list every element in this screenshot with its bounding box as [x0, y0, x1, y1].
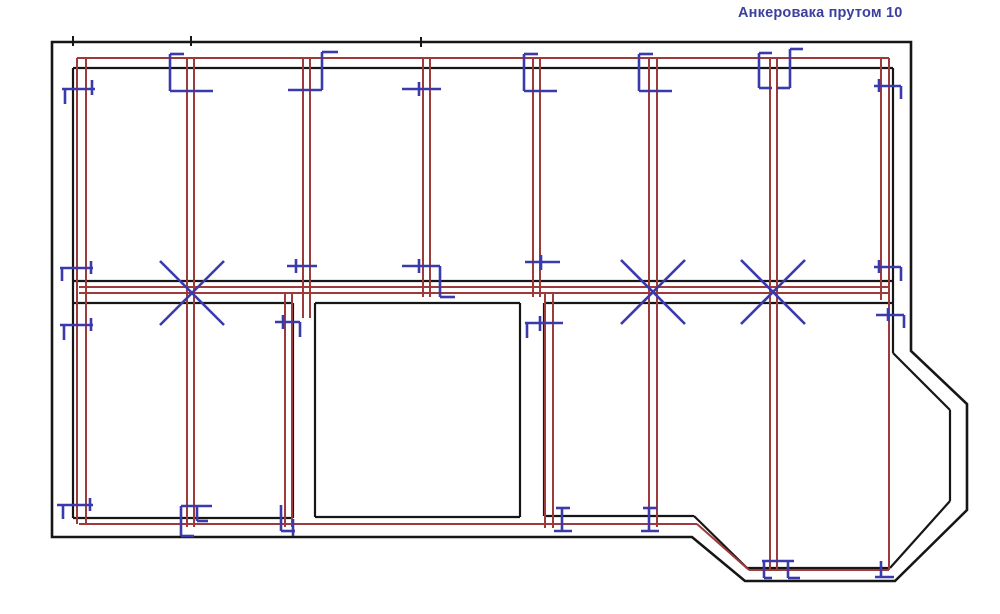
rebar-lines — [77, 58, 889, 571]
anchor-mark-p3-mid-hook — [402, 259, 455, 297]
anchor-mark-p4-mid-tick — [525, 255, 560, 270]
outer-wall-outline — [52, 42, 967, 581]
floor-plan — [0, 0, 1000, 614]
anchor-mark-room1-bottomleft — [57, 498, 93, 519]
drawing-stage: Анкеровака прутом 10 — [0, 0, 1000, 614]
anchor-mark-p1-top-bracket — [170, 54, 213, 91]
anchor-mark-p5-top-bracket — [639, 54, 672, 91]
anchor-mark-room1-bottom-bracket — [181, 506, 212, 536]
anchor-mark-p3-top-tick — [402, 82, 441, 96]
outer-wall-polygon — [52, 42, 967, 581]
anchor-mark-top-right-corner — [874, 79, 901, 99]
inner-wall-lines — [73, 68, 950, 568]
anchor-mark-room3-bottom-tee-1 — [554, 508, 572, 531]
anchor-mark-right-mid-tick — [874, 260, 901, 281]
anchor-mark-room1-topright-hook — [275, 315, 300, 337]
anchor-mark-top-left-corner — [62, 80, 95, 104]
